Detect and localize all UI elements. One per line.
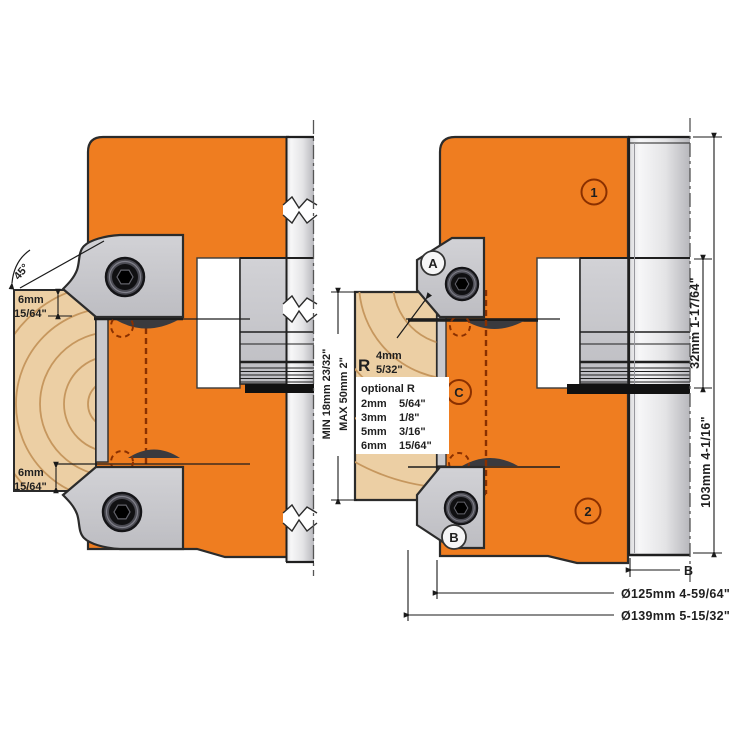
top-depth-mm: 6mm (18, 294, 44, 306)
angle-45-label: 45° (12, 262, 32, 282)
dia-139-label: Ø139mm 5-15/32" (621, 609, 730, 623)
technical-diagram: 1 2 C A B 45° 6mm 15 (0, 0, 730, 730)
left-assembly (0, 120, 317, 576)
bore-b-dimension: B (630, 558, 693, 578)
left-shim-black-band (245, 384, 314, 393)
left-top-insert (63, 235, 183, 317)
dia-125-label: Ø125mm 4-59/64" (621, 587, 730, 601)
callout-A-label: A (428, 256, 438, 271)
bottom-depth-inch: 15/64" (14, 481, 47, 493)
callout-B-label: B (449, 530, 458, 545)
right-bottom-insert-screw (445, 492, 477, 524)
bore-b-label: B (684, 564, 693, 578)
stock-min-label: MIN 18mm 23/32" (321, 349, 333, 440)
radius-r-label: R (358, 356, 370, 375)
optional-r-row0-inch: 5/64" (399, 398, 426, 410)
bottom-depth-mm: 6mm (18, 467, 44, 479)
left-wear-strip (96, 316, 108, 462)
optional-r-row2-inch: 3/16" (399, 426, 426, 438)
callout-2-label: 2 (584, 504, 591, 519)
left-top-insert-screw (106, 258, 144, 296)
radius-mm-label: 4mm (376, 350, 402, 362)
spacer-32-label: 32mm 1-17/64" (688, 277, 702, 369)
left-spacer-section (240, 258, 287, 384)
right-spacer-section (580, 258, 628, 384)
optional-r-row2-mm: 5mm (361, 426, 387, 438)
callout-A: A (421, 251, 445, 275)
left-chip-gullet (197, 258, 240, 388)
left-bottom-insert (63, 467, 183, 549)
right-chip-gullet (537, 258, 580, 388)
optional-r-table: optional R 2mm 5/64" 3mm 1/8" 5mm 3/16" … (356, 377, 449, 454)
optional-r-row0-mm: 2mm (361, 398, 387, 410)
optional-r-row1-mm: 3mm (361, 412, 387, 424)
stock-thickness-dimension: MIN 18mm 23/32" MAX 50mm 2" (321, 292, 357, 500)
callout-B: B (442, 525, 466, 549)
left-bottom-insert-screw (103, 493, 141, 531)
right-top-insert-screw (446, 268, 478, 300)
radius-inch-label: 5/32" (376, 364, 403, 376)
spacer-32-dimension: 32mm 1-17/64" (688, 259, 712, 388)
optional-r-row3-mm: 6mm (361, 440, 387, 452)
optional-r-row3-inch: 15/64" (399, 440, 432, 452)
callout-1-label: 1 (590, 185, 597, 200)
callout-C-label: C (454, 385, 464, 400)
top-depth-inch: 15/64" (14, 308, 47, 320)
right-assembly (250, 78, 690, 582)
height-103-label: 103mm 4-1/16" (699, 416, 713, 508)
right-shim-black-band (567, 384, 690, 394)
optional-r-row1-inch: 1/8" (399, 412, 420, 424)
stock-max-label: MAX 50mm 2" (338, 357, 350, 431)
optional-r-title: optional R (361, 383, 415, 395)
right-hub-column (628, 137, 690, 555)
